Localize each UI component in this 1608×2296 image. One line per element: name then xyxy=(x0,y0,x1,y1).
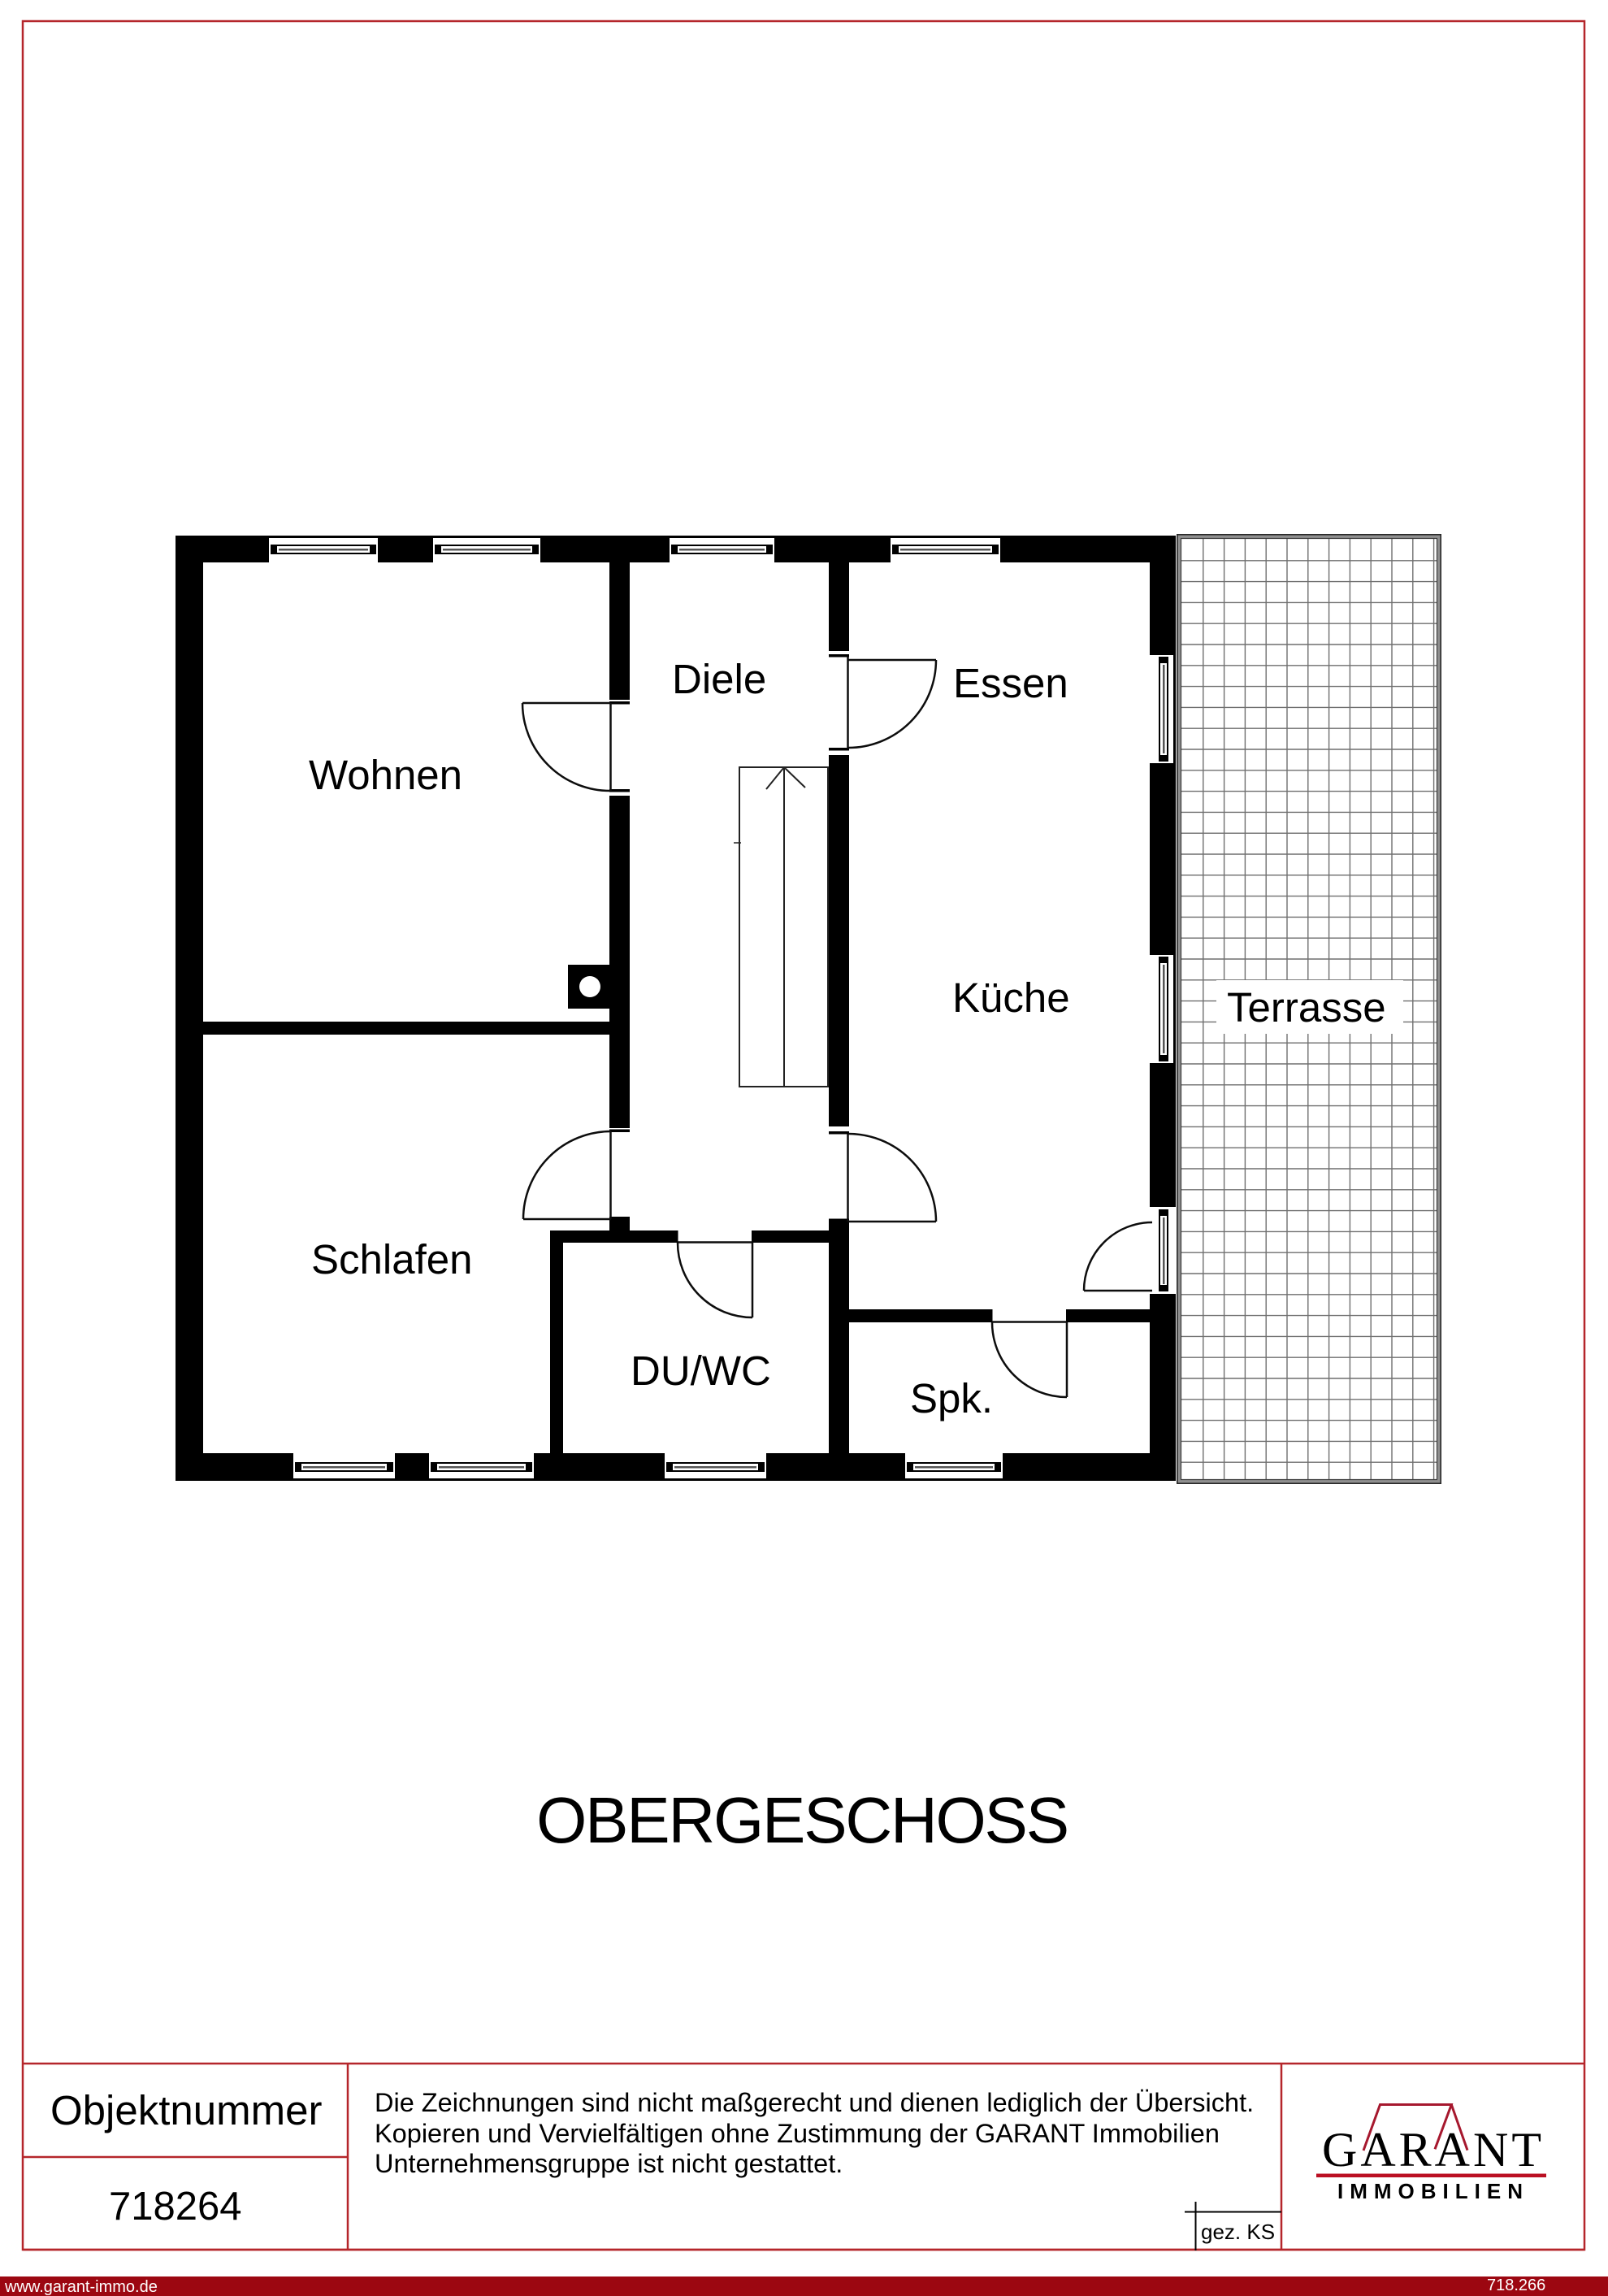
svg-text:GARANT: GARANT xyxy=(1322,2123,1545,2177)
svg-text:gez. KS: gez. KS xyxy=(1201,2220,1275,2244)
svg-text:Die Zeichnungen sind nicht maß: Die Zeichnungen sind nicht maßgerecht un… xyxy=(375,2088,1254,2117)
svg-text:Kopieren und Vervielfältigen o: Kopieren und Vervielfältigen ohne Zustim… xyxy=(375,2119,1220,2148)
svg-text:Terrasse: Terrasse xyxy=(1227,984,1386,1031)
svg-text:Essen: Essen xyxy=(953,660,1068,706)
svg-text:DU/WC: DU/WC xyxy=(631,1348,771,1394)
svg-text:Unternehmensgruppe ist nicht g: Unternehmensgruppe ist nicht gestattet. xyxy=(375,2149,843,2178)
svg-text:Spk.: Spk. xyxy=(910,1375,993,1421)
svg-text:IMMOBILIEN: IMMOBILIEN xyxy=(1337,2179,1529,2203)
svg-text:Diele: Diele xyxy=(672,656,766,702)
svg-text:718264: 718264 xyxy=(109,2185,242,2229)
svg-text:Wohnen: Wohnen xyxy=(309,752,462,798)
svg-text:718.266: 718.266 xyxy=(1487,2276,1545,2294)
svg-text:OBERGESCHOSS: OBERGESCHOSS xyxy=(536,1784,1068,1856)
svg-text:Objektnummer: Objektnummer xyxy=(50,2087,322,2133)
svg-text:Küche: Küche xyxy=(952,974,1070,1021)
svg-text:www.garant-immo.de: www.garant-immo.de xyxy=(4,2278,158,2296)
svg-text:Schlafen: Schlafen xyxy=(311,1236,472,1283)
